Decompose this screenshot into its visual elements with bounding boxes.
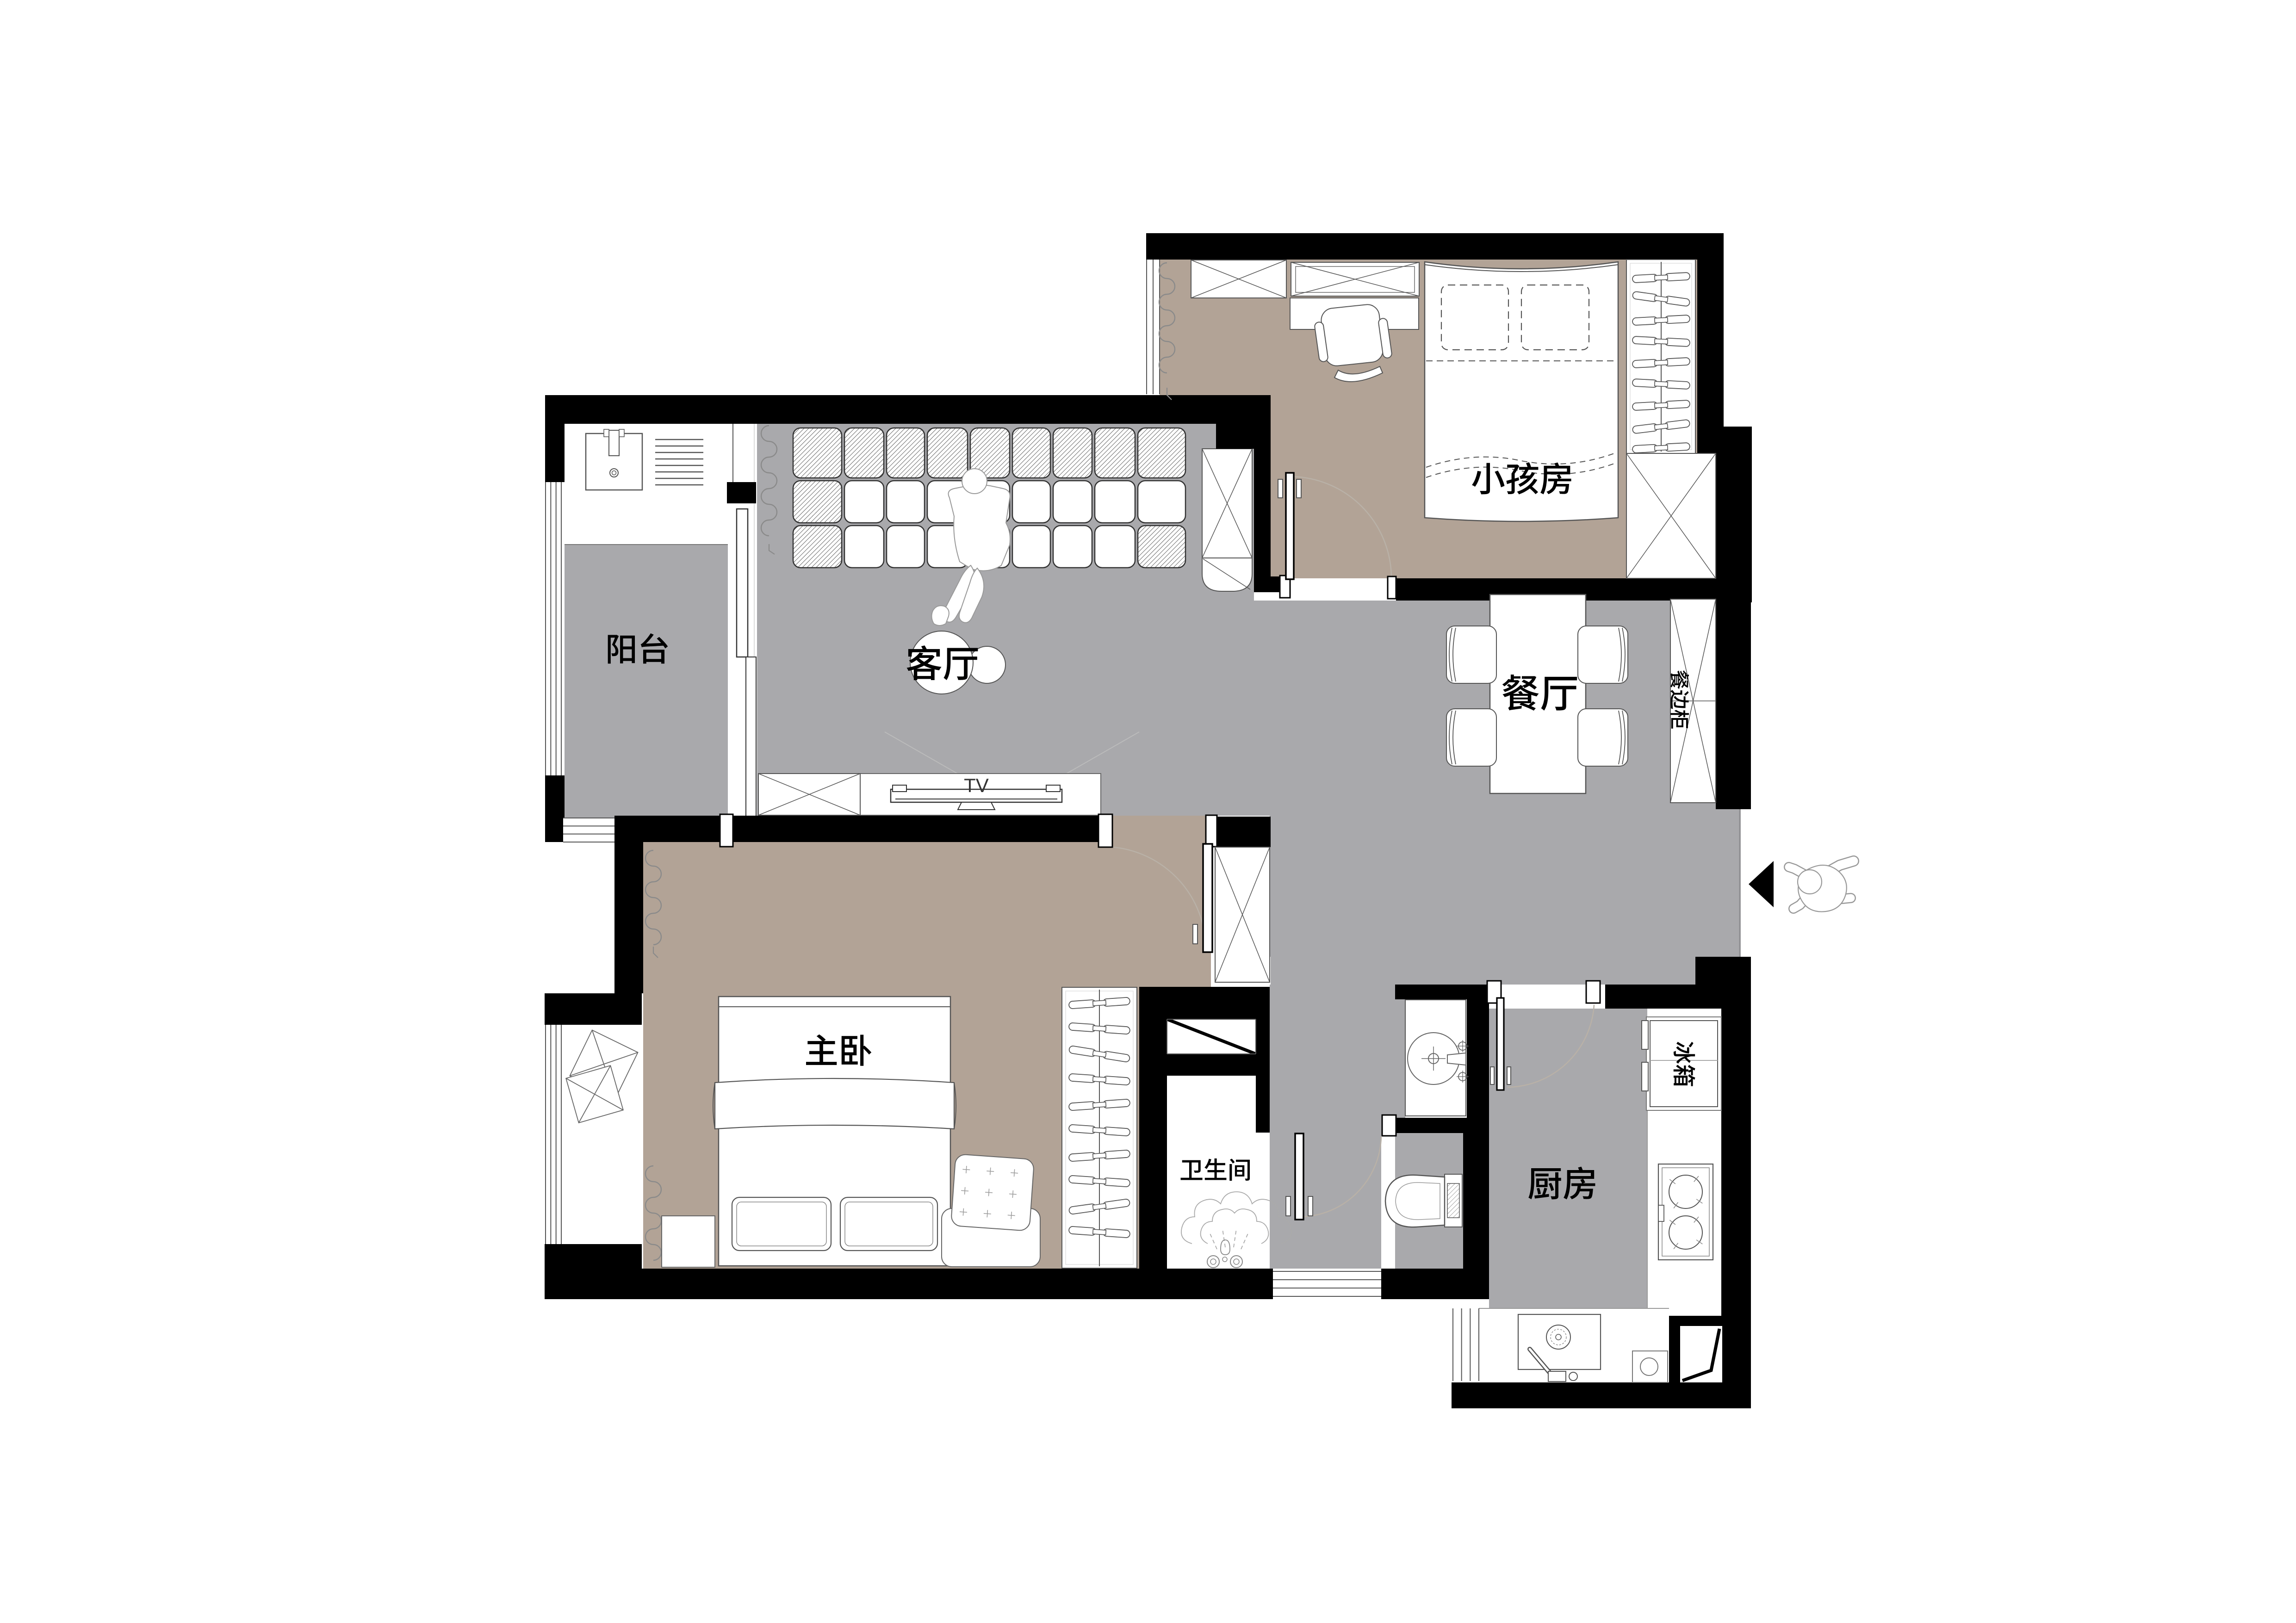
svg-text:TV: TV	[964, 774, 989, 796]
